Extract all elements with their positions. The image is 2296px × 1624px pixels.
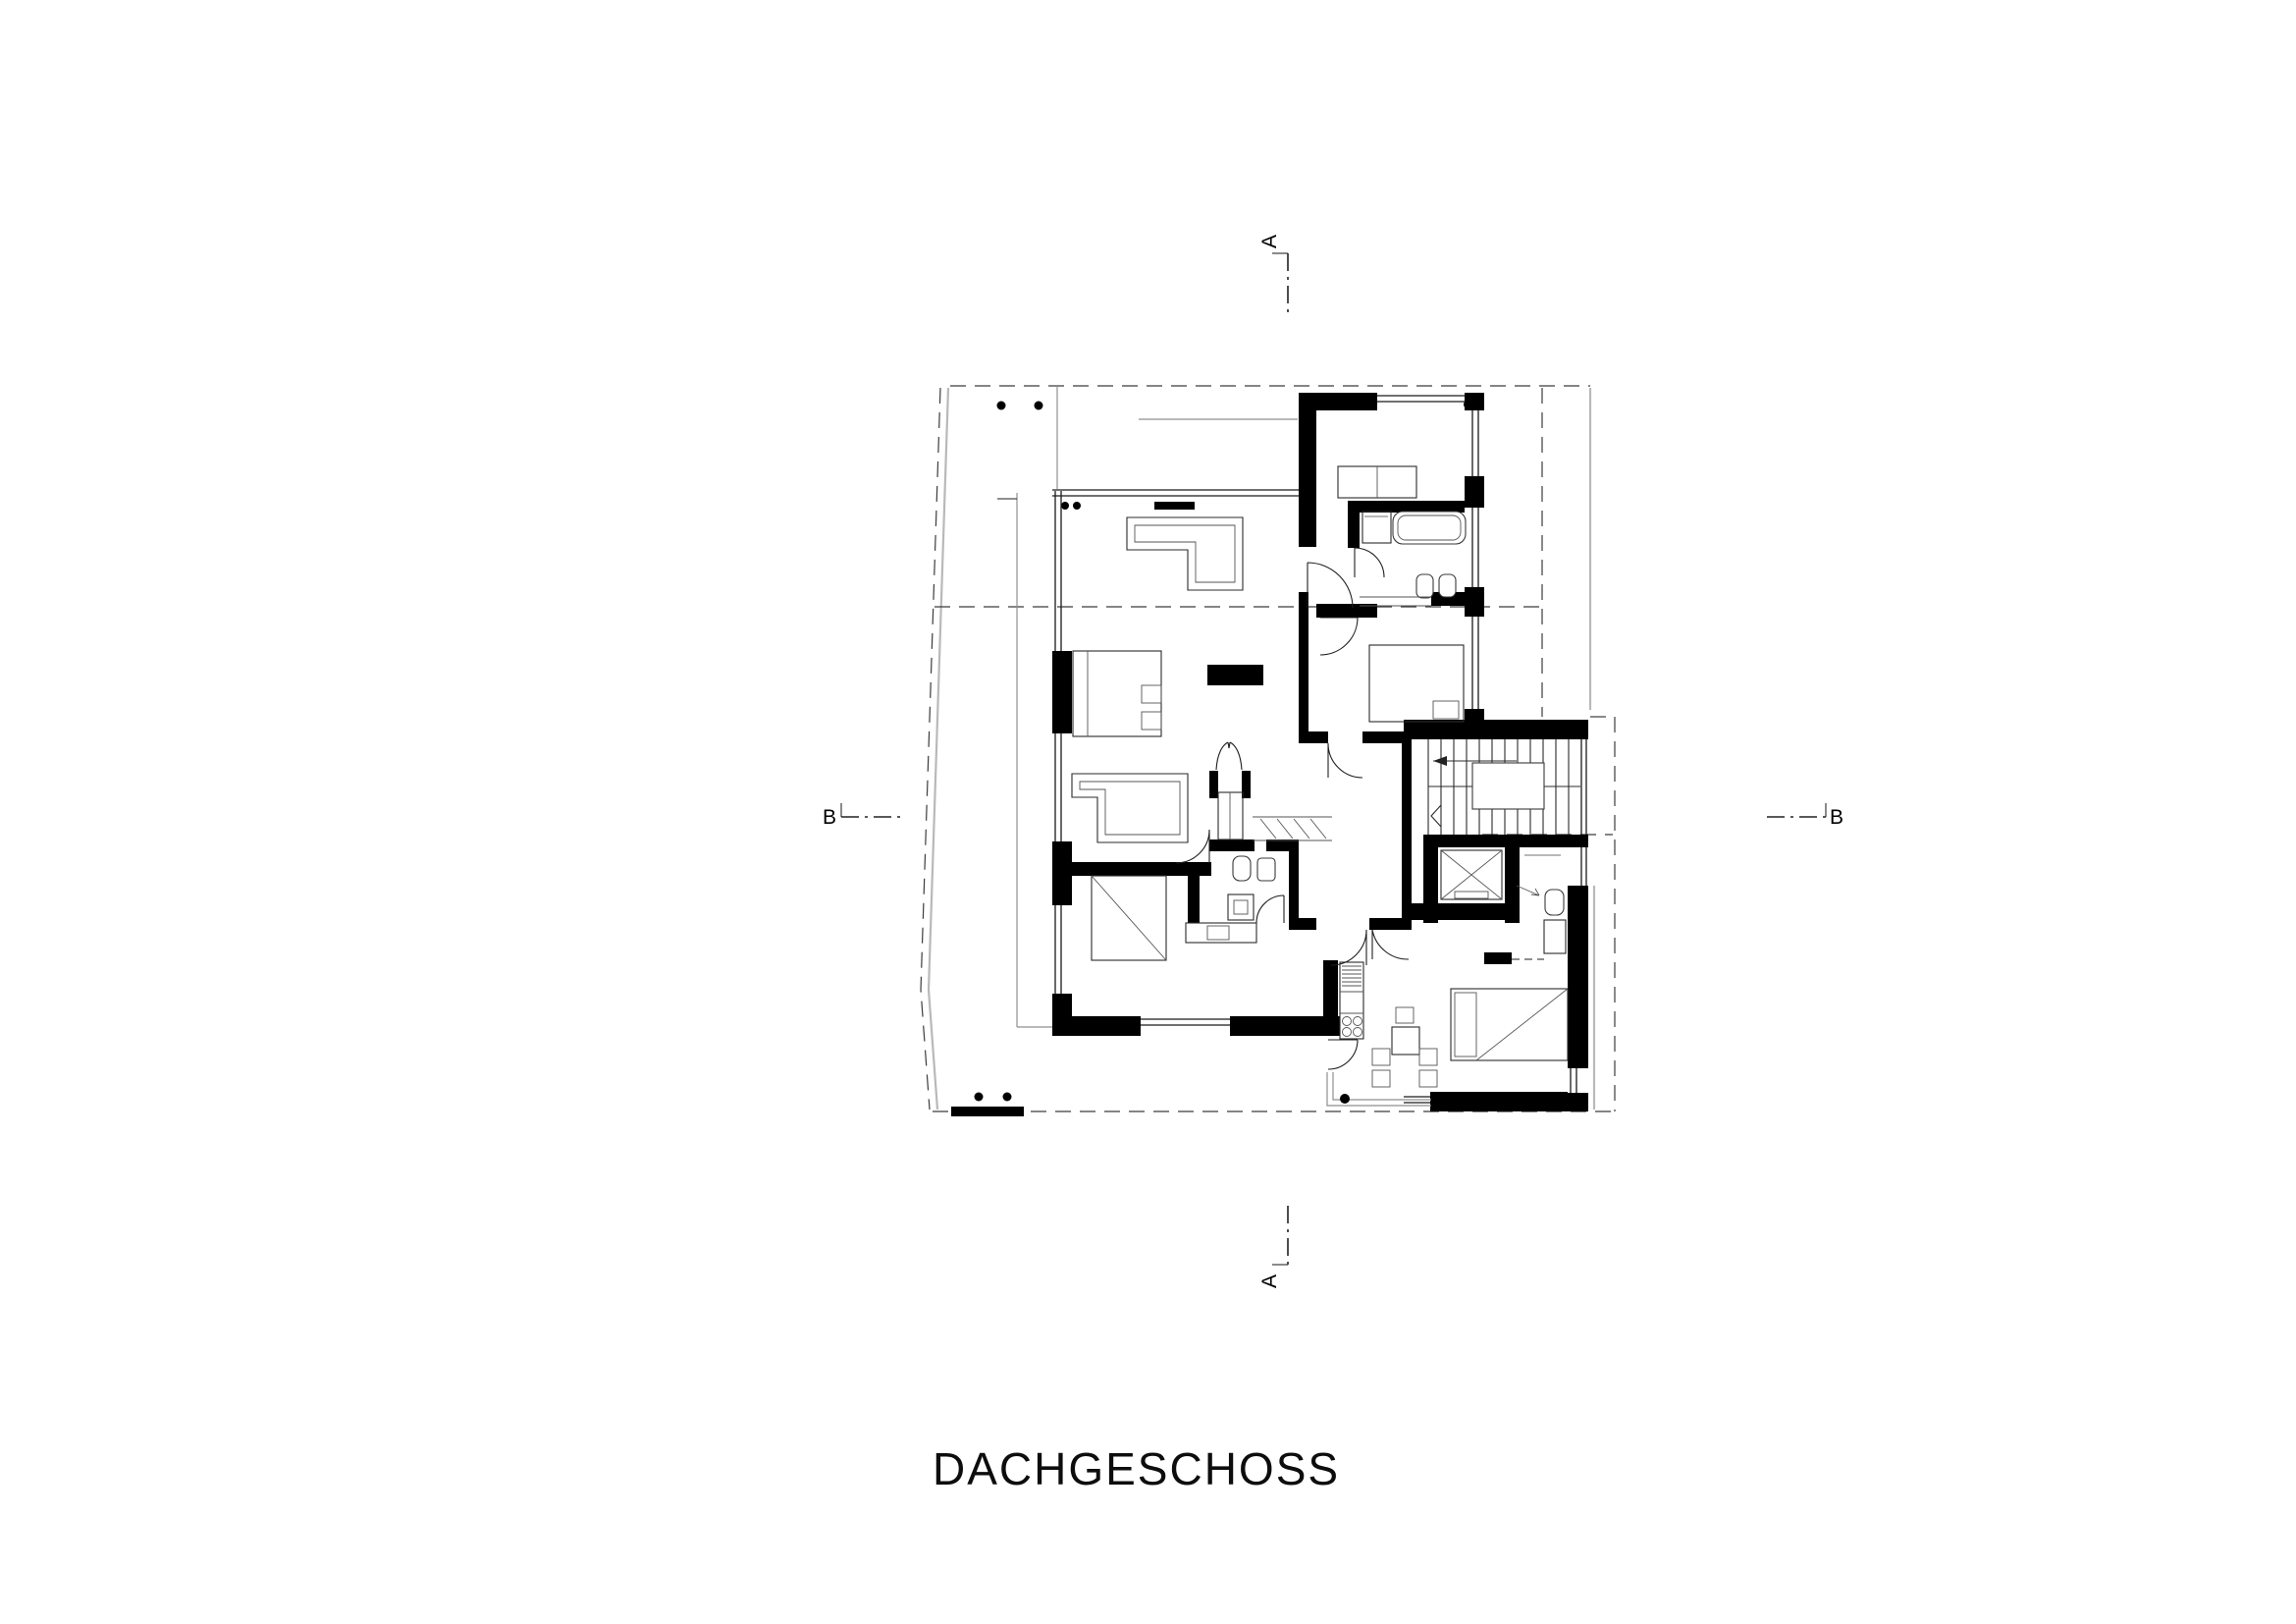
parapet-stub: [951, 1107, 1024, 1116]
drawing-title: DACHGESCHOSS: [933, 1443, 1340, 1494]
floor-plan-sheet: A A B B DACHGESCHOSS: [0, 0, 2296, 1624]
wc: [1416, 574, 1433, 598]
door-bedroom2: [1320, 618, 1358, 655]
coat-closet: [1253, 817, 1332, 840]
double-door-living: [1216, 742, 1242, 770]
entry-arrow: [1517, 886, 1539, 895]
fireplace: [1207, 665, 1263, 685]
vent-dot: [1035, 402, 1043, 410]
vent-dot: [975, 1093, 984, 1102]
window-west-lower: [1055, 903, 1061, 994]
windows: [1052, 396, 1586, 1103]
walls: [1052, 393, 1588, 1111]
door-studio-terrace: [1328, 1040, 1358, 1069]
single-bed: [1092, 876, 1166, 960]
vent-dot: [997, 402, 1006, 410]
door-bathroom: [1355, 548, 1384, 577]
window-north-living: [1052, 490, 1306, 496]
window-north-bedroom: [1377, 396, 1465, 402]
stair-arrow: [1433, 756, 1447, 766]
section-label-b-left: B: [823, 806, 836, 829]
section-marker-a-top: A: [1258, 235, 1288, 312]
door-living-wing: [1308, 563, 1353, 608]
window-east-stair: [1581, 739, 1586, 835]
column-dot: [1061, 502, 1069, 510]
guest-furniture: [1072, 774, 1188, 842]
section-marker-a-bottom: A: [1258, 1206, 1288, 1288]
column-dot: [1073, 502, 1081, 510]
stair-chevron: [1431, 805, 1441, 827]
site-edge-gray-left: [929, 388, 948, 1110]
elevator: [1441, 850, 1502, 899]
door-corridor-right: [1372, 930, 1409, 959]
window-east-bath: [1472, 508, 1478, 587]
door-corridor-left: [1331, 930, 1366, 965]
bidet: [1439, 574, 1456, 597]
window-east-studio: [1571, 1067, 1576, 1093]
studio-bed: [1451, 989, 1568, 1060]
section-label-a-bottom: A: [1258, 1274, 1281, 1288]
dining-table-chairs: [1372, 1007, 1437, 1087]
bedroom-wardrobe: [1338, 466, 1416, 498]
vent-dot: [1003, 1093, 1012, 1102]
door-wc: [1256, 895, 1284, 923]
bathroom-fixtures: [1360, 512, 1466, 606]
door-guest-room: [1176, 830, 1209, 863]
double-bed: [1369, 645, 1464, 722]
section-label-a-top: A: [1258, 235, 1281, 248]
kitchenette: [1340, 962, 1363, 1039]
section-marker-b-right: B: [1767, 803, 1843, 829]
window-west-upper: [1055, 491, 1061, 651]
hall-closet: [1218, 792, 1243, 839]
terrace-bench: [1327, 1072, 1431, 1106]
terrace-railing: [1017, 493, 1052, 1027]
shower: [1544, 920, 1566, 953]
l-sofa: [1127, 517, 1243, 590]
bathtub: [1393, 512, 1466, 544]
window-south-bedroom: [1141, 1019, 1230, 1025]
studio-bath-fixtures: [1517, 855, 1566, 953]
u-stairs: [1428, 739, 1580, 835]
wc: [1545, 890, 1564, 915]
window-east-bedroom2: [1472, 617, 1478, 709]
section-marker-b-left: B: [823, 803, 903, 829]
door-hall-living: [1328, 743, 1362, 778]
window-west-mid: [1055, 733, 1061, 841]
section-label-b-right: B: [1830, 806, 1843, 829]
window-east-bedroom: [1472, 410, 1478, 476]
floor-plan-drawing: A A B B DACHGESCHOSS: [0, 0, 2296, 1624]
stair-landing: [1472, 763, 1544, 809]
master-bed: [1073, 651, 1161, 736]
shaft-black-bar: [1154, 502, 1195, 510]
